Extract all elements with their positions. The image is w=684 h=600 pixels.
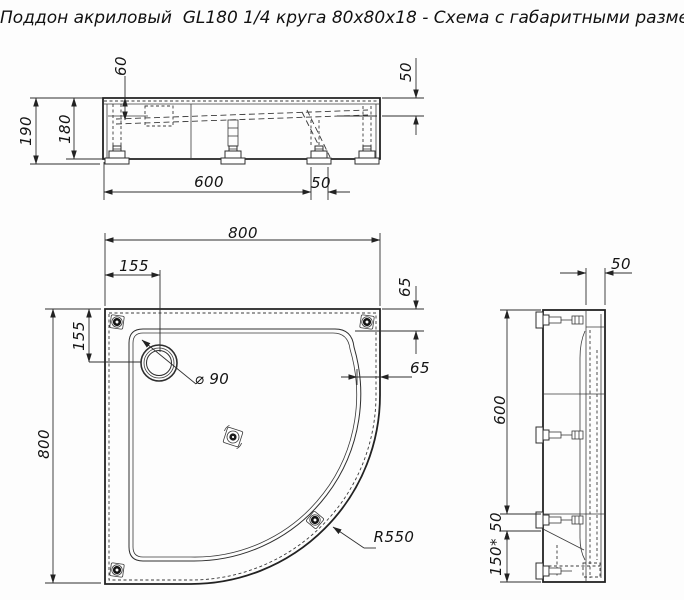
arc-bolt <box>306 511 324 529</box>
front-foot <box>105 146 129 164</box>
plan-dim-height: 800 <box>35 429 53 459</box>
plan-dim-rim-top: 65 <box>396 277 414 297</box>
plan-view <box>45 233 424 584</box>
front-dim-body-height: 180 <box>56 114 74 144</box>
side-dim-bottom-offset: 150* <box>487 538 505 576</box>
side-dim-rim-width: 50 <box>611 255 631 273</box>
front-foot <box>307 146 331 164</box>
radius-leader <box>333 527 376 548</box>
front-foot <box>221 146 245 164</box>
front-dim-rim-drop: 50 <box>397 62 415 82</box>
side-foot <box>536 312 583 328</box>
corner-bolt <box>360 315 375 330</box>
front-dim-foot-plate: 50 <box>311 174 331 192</box>
corner-bolt <box>110 563 125 578</box>
plan-dimensions <box>45 233 424 583</box>
plan-dim-width: 800 <box>228 224 258 242</box>
corner-bolt <box>110 315 125 330</box>
side-view <box>500 268 632 582</box>
front-dim-feet-span: 600 <box>194 173 224 191</box>
front-dimensions <box>30 58 424 200</box>
front-hidden-legs <box>113 104 371 146</box>
plan-dim-drain-top: 155 <box>70 321 88 351</box>
side-dimensions <box>500 268 632 582</box>
front-dim-total-height: 190 <box>17 116 35 146</box>
plan-drain <box>141 345 177 381</box>
plan-dim-drain-left: 155 <box>119 257 149 275</box>
front-view <box>30 58 424 200</box>
front-dim-basin-depth: 60 <box>112 56 130 76</box>
center-support <box>220 424 245 449</box>
front-foot <box>355 146 379 164</box>
schematic-linework <box>0 0 684 600</box>
plan-corner-radius: R550 <box>374 528 415 546</box>
side-foot <box>536 427 583 443</box>
side-dim-span: 600 <box>491 395 509 425</box>
plan-dim-rim-right: 65 <box>410 359 430 377</box>
plan-drain-diameter: ⌀ 90 <box>195 370 230 388</box>
drawing-sheet: Поддон акриловый GL180 1/4 круга 80х80х1… <box>0 0 684 600</box>
side-foot <box>536 563 572 579</box>
side-dim-foot-plate: 50 <box>487 512 505 532</box>
side-foot <box>536 512 583 528</box>
